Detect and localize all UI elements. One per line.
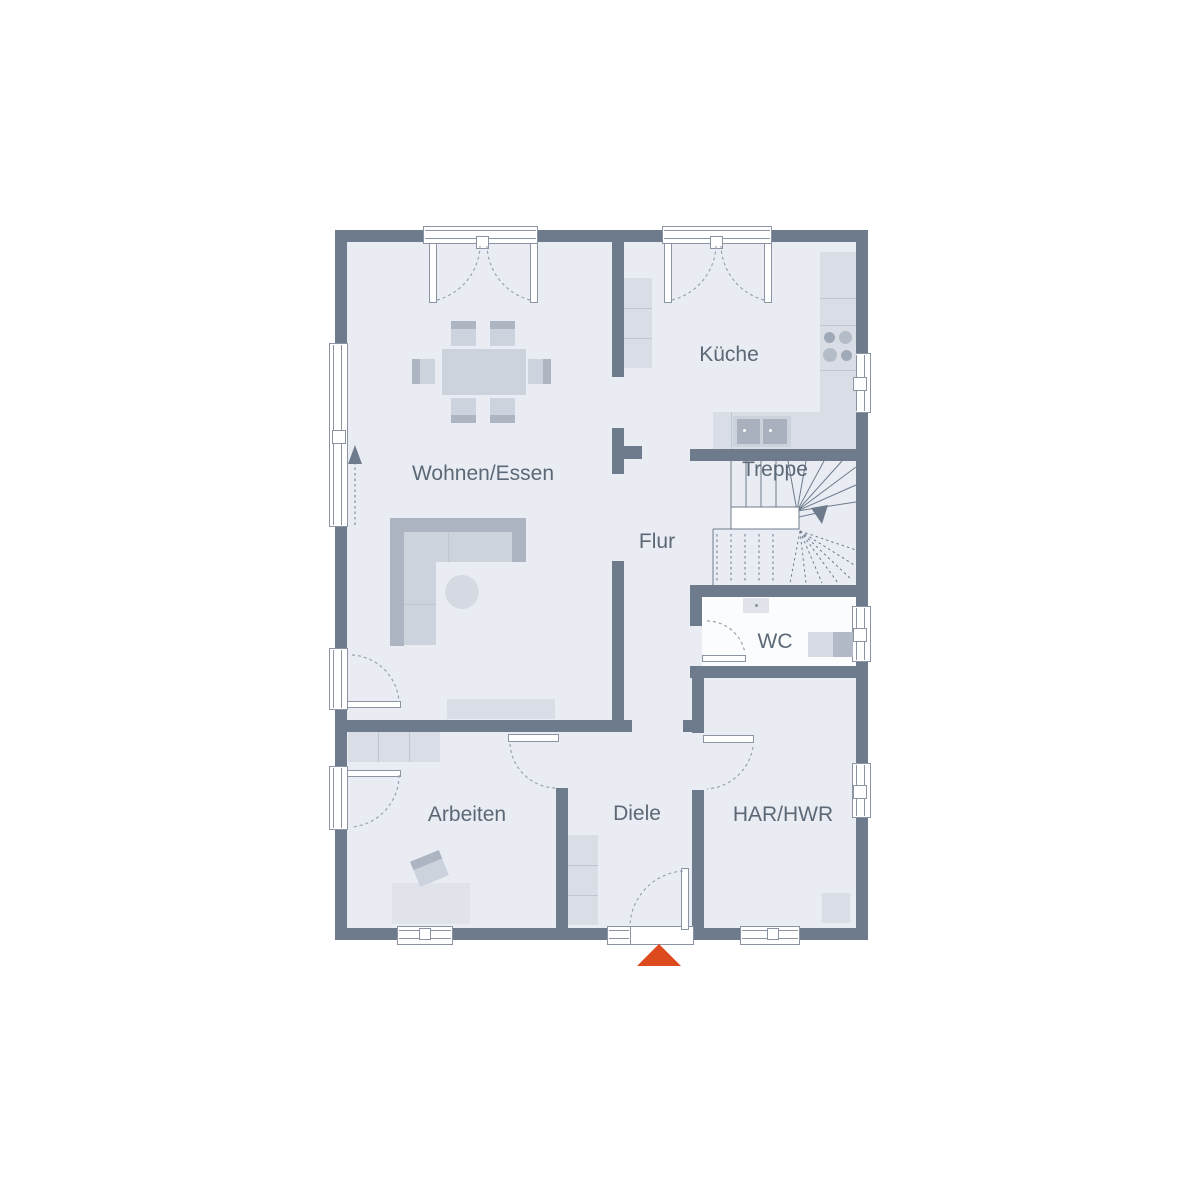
room-label-arbeiten: Arbeiten	[428, 803, 506, 827]
entrance-marker-icon	[637, 944, 681, 966]
plan-annotations-layer	[0, 0, 1200, 1200]
room-label-har-hwr: HAR/HWR	[733, 803, 833, 827]
room-label-wc: WC	[758, 630, 793, 654]
room-label-flur: Flur	[639, 530, 675, 554]
room-label-diele: Diele	[613, 802, 661, 826]
floor-plan-canvas: Wohnen/Essen Küche Treppe Flur WC Arbeit…	[0, 0, 1200, 1200]
view-direction-arrow-icon	[348, 445, 362, 525]
room-label-kueche: Küche	[699, 343, 759, 367]
room-label-treppe: Treppe	[742, 458, 808, 482]
room-label-wohnen-essen: Wohnen/Essen	[412, 462, 554, 486]
